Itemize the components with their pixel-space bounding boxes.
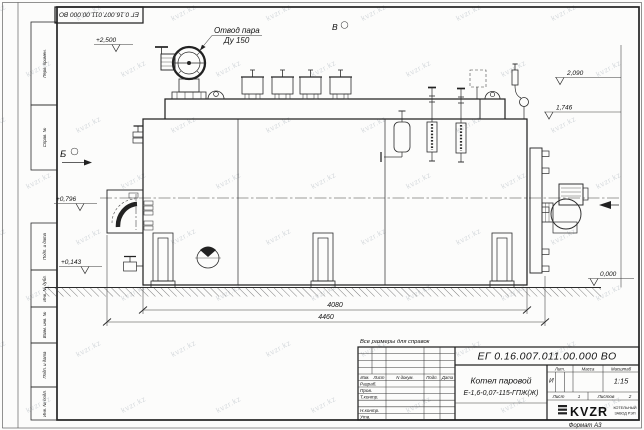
elevation-mark-2090: 2,090 (555, 70, 621, 85)
burner-volute (551, 199, 581, 229)
view-label-v: В (332, 22, 348, 32)
support-leg (151, 233, 175, 288)
lit-value: И (549, 378, 554, 385)
support-leg (311, 233, 335, 288)
front-smoke-box (107, 190, 153, 233)
lifting-lug (208, 91, 224, 99)
logo-sub2: ЗАВОД РЭП (614, 412, 635, 416)
row-utv: Утв. (360, 414, 370, 419)
safety-valve (299, 70, 322, 99)
elevation-mark-0000: 0,000 (588, 271, 634, 286)
product-model: Е-1,6-0,07-115-ГПЖ(Ж) (464, 390, 539, 397)
safety-valve (271, 70, 294, 99)
flipped-docnum: ЕГ 0.16.007.011.00.000 ВО (59, 11, 139, 18)
logo-sub1: КОТЕЛЬНЫЙ (613, 406, 636, 410)
flipped-docnum-box: ЕГ 0.16.007.011.00.000 ВО (55, 7, 143, 23)
title-block: Изм. Лист N докум. Подп. Дата Разраб. Пр… (358, 347, 639, 420)
margin-box-label: Справ. № (42, 127, 47, 147)
level-sensor (512, 64, 529, 119)
th-ndokum: N докум. (396, 375, 413, 380)
title-docnum: ЕГ 0.16.007.011.00.000 ВО (477, 351, 616, 363)
margin-box-label: Подп. и дата (42, 351, 47, 379)
elevation-text: +2,500 (96, 37, 116, 44)
margin-box-label: Инв. № подл. (42, 390, 47, 417)
ground-hatch (45, 288, 601, 297)
elevation-text: 1,746 (556, 105, 573, 112)
drawing-sheet: kvzr.kzkvzr.kzkvzr.kzkvzr.kzkvzr.kzkvzr.… (0, 0, 644, 430)
manhole (195, 247, 221, 269)
sheet-label: Лист (552, 394, 565, 399)
rear-plate (530, 148, 542, 273)
flow-arrow (599, 201, 619, 209)
burner-assembly (530, 148, 588, 273)
sheet-value: 1 (578, 394, 581, 399)
steam-drum-top (165, 99, 505, 119)
margin-stamp-boxes: Перв. примен. Справ. № Подп. и дата Инв.… (31, 22, 57, 420)
sheets-label: Листов (597, 394, 615, 399)
th-izm: Изм. (360, 375, 369, 380)
dim-4460: 4460 (103, 235, 549, 326)
scale-value: 1:15 (614, 377, 629, 386)
reference-note: Все размеры для справок (360, 339, 430, 345)
th-masshtab: Масштаб (611, 366, 632, 371)
safety-valve (329, 70, 352, 99)
th-list: Лист (372, 375, 384, 380)
th-massa: Масса (582, 366, 595, 371)
th-data: Дата (441, 375, 454, 380)
dim-4080-text: 4080 (327, 302, 343, 309)
sensor-envelope (470, 70, 486, 87)
format-label: Формат А3 (569, 423, 602, 429)
view-v-text: В (332, 22, 338, 32)
support-leg (490, 233, 514, 288)
elevation-mark-2500: +2,500 (94, 37, 133, 52)
view-label-b: Б (60, 148, 92, 165)
elevation-mark-0796: +0,796 (54, 196, 97, 211)
logo-text: KVZR (570, 405, 608, 419)
row-razrab: Разраб. (360, 382, 377, 387)
row-tkontr: Т.контр. (360, 395, 379, 400)
elevation-text: +0,143 (61, 259, 81, 266)
steam-outlet-text-1: Отвод пара (214, 26, 260, 35)
product-title: Котел паровой (471, 376, 532, 386)
safety-valve (241, 70, 264, 99)
rear-box (470, 70, 505, 119)
top-nozzle-valve (133, 126, 143, 143)
th-lit: Лит. (554, 366, 565, 371)
margin-box-label: Подп. и дата (42, 232, 47, 260)
steam-valve (155, 47, 206, 99)
drawing-svg: Перв. примен. Справ. № Подп. и дата Инв.… (0, 0, 644, 430)
steam-outlet-label: Отвод пара Ду 150 (200, 26, 262, 51)
steam-outlet-text-2: Ду 150 (223, 36, 250, 45)
drain-valve (124, 257, 144, 272)
elevation-text: 2,090 (566, 70, 584, 77)
elevation-text: +0,796 (56, 196, 76, 203)
th-podp: Подп. (426, 375, 437, 380)
margin-box-label: Взам. инв. № (42, 311, 47, 338)
view-b-text: Б (60, 149, 66, 160)
burner-motor (559, 184, 583, 205)
margin-box-label: Перв. примен. (42, 49, 47, 78)
lifting-lug (485, 92, 500, 99)
row-nkontr: Н.контр. (360, 408, 379, 413)
ground (45, 288, 601, 297)
elevation-mark-1746: 1,746 (544, 105, 621, 120)
elevation-mark-0143: +0,143 (59, 259, 102, 274)
elevation-text: 0,000 (600, 271, 617, 278)
kvzr-logo: KVZR КОТЕЛЬНЫЙ ЗАВОД РЭП (558, 405, 637, 419)
dim-4460-text: 4460 (318, 314, 334, 321)
row-prov: Пров. (360, 388, 372, 393)
sheets-value: 2 (628, 394, 632, 399)
